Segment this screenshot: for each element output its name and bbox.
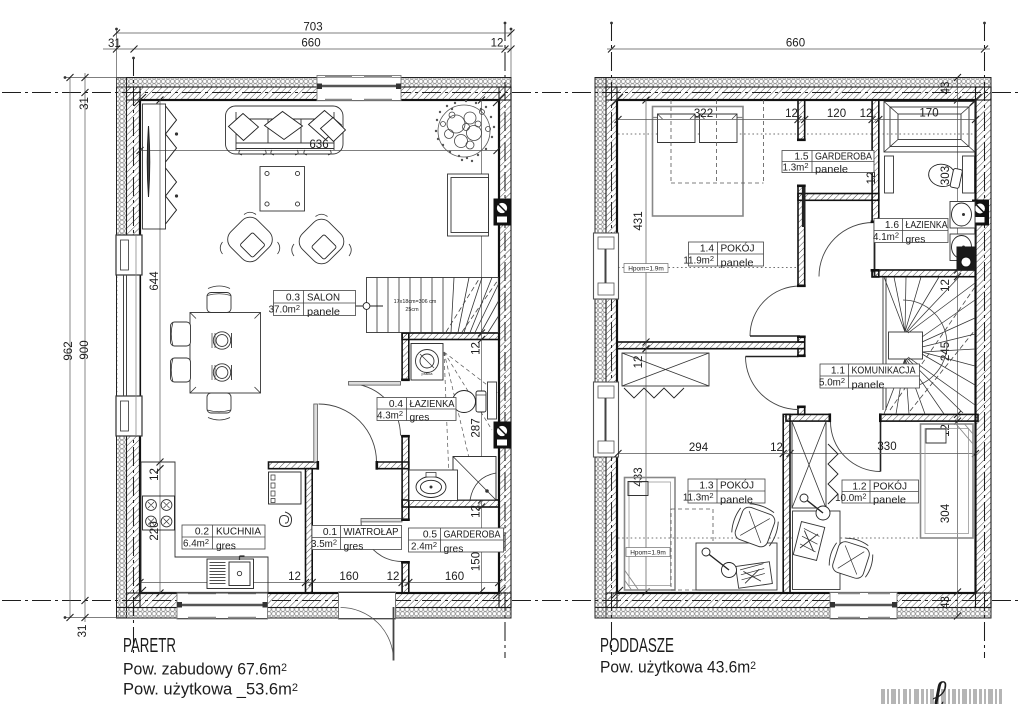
- svg-text:gres: gres: [216, 541, 236, 552]
- svg-text:KUCHNIA: KUCHNIA: [216, 527, 261, 538]
- svg-text:12: 12: [770, 442, 783, 454]
- svg-text:gres: gres: [444, 544, 464, 555]
- svg-text:POKÓJ: POKÓJ: [873, 479, 907, 492]
- svg-text:11.9m2: 11.9m2: [683, 254, 714, 267]
- svg-text:POKÓJ: POKÓJ: [721, 242, 755, 255]
- svg-text:25cm: 25cm: [405, 307, 419, 313]
- svg-text:43: 43: [940, 596, 952, 609]
- svg-text:287: 287: [471, 418, 483, 437]
- svg-text:330: 330: [877, 441, 896, 453]
- svg-text:WIATROŁAP: WIATROŁAP: [344, 527, 399, 538]
- svg-text:panele: panele: [873, 495, 906, 506]
- svg-text:31: 31: [77, 625, 89, 638]
- svg-text:Hpom=1.9m: Hpom=1.9m: [630, 550, 666, 557]
- svg-text:962: 962: [63, 341, 75, 360]
- svg-text:panele: panele: [815, 165, 848, 176]
- svg-text:294: 294: [689, 442, 709, 454]
- svg-text:10.0m2: 10.0m2: [835, 492, 866, 505]
- svg-text:0.5: 0.5: [423, 530, 437, 541]
- svg-text:12: 12: [288, 571, 301, 583]
- svg-text:12: 12: [860, 108, 873, 120]
- svg-text:120: 120: [827, 108, 846, 120]
- svg-text:12: 12: [471, 505, 483, 518]
- svg-text:12: 12: [785, 108, 798, 120]
- svg-text:1.3: 1.3: [699, 481, 713, 492]
- svg-text:31: 31: [108, 38, 121, 50]
- svg-text:11.3m2: 11.3m2: [683, 491, 714, 504]
- svg-text:ℓ: ℓ: [932, 674, 947, 704]
- svg-text:17x18cm=306 cm: 17x18cm=306 cm: [394, 299, 437, 305]
- svg-text:PARETR: PARETR: [123, 635, 176, 657]
- svg-text:304: 304: [940, 503, 952, 523]
- svg-text:1.6: 1.6: [885, 220, 899, 231]
- svg-text:1.4: 1.4: [700, 244, 714, 255]
- svg-text:PODDASZE: PODDASZE: [600, 635, 674, 657]
- svg-text:660: 660: [301, 38, 320, 50]
- svg-text:panele: panele: [720, 495, 753, 506]
- svg-text:12: 12: [387, 571, 400, 583]
- svg-text:GARDEROBA: GARDEROBA: [444, 530, 501, 541]
- svg-text:12: 12: [471, 342, 483, 355]
- svg-text:37.0m2: 37.0m2: [269, 303, 300, 316]
- svg-text:1.1: 1.1: [831, 366, 845, 377]
- svg-text:panele: panele: [721, 258, 754, 269]
- svg-text:Pow. zabudowy 67.6m2: Pow. zabudowy 67.6m2: [123, 661, 287, 679]
- svg-text:12: 12: [866, 172, 878, 185]
- svg-text:660: 660: [786, 38, 805, 50]
- svg-text:gres: gres: [344, 542, 364, 553]
- svg-text:POKÓJ: POKÓJ: [720, 479, 754, 492]
- svg-text:0.3: 0.3: [286, 293, 300, 304]
- svg-text:SALON: SALON: [307, 293, 340, 304]
- svg-text:Hpom=1.9m: Hpom=1.9m: [628, 266, 664, 273]
- svg-text:160: 160: [339, 571, 358, 583]
- svg-text:panele: panele: [307, 307, 340, 318]
- svg-text:43: 43: [940, 82, 952, 95]
- svg-text:150: 150: [471, 552, 483, 571]
- svg-text:160: 160: [445, 571, 464, 583]
- svg-text:644: 644: [149, 271, 161, 291]
- svg-text:KOMUNIKACJA: KOMUNIKACJA: [852, 366, 916, 377]
- svg-text:220: 220: [149, 521, 161, 540]
- svg-text:12: 12: [940, 279, 952, 292]
- svg-text:Pow. użytkowa _53.6m2: Pow. użytkowa _53.6m2: [123, 681, 298, 699]
- svg-text:0.1: 0.1: [323, 527, 337, 538]
- svg-text:636: 636: [309, 139, 328, 151]
- svg-text:900: 900: [79, 340, 91, 359]
- svg-text:0.2: 0.2: [195, 527, 209, 538]
- svg-text:12: 12: [149, 468, 161, 481]
- svg-text:170: 170: [919, 108, 938, 120]
- svg-text:GARDEROBA: GARDEROBA: [815, 152, 872, 163]
- svg-text:12: 12: [491, 38, 504, 50]
- svg-text:gres: gres: [906, 235, 926, 246]
- svg-text:ŁAZIENKA: ŁAZIENKA: [410, 399, 455, 410]
- svg-text:panele: panele: [852, 380, 885, 391]
- svg-text:431: 431: [633, 211, 645, 230]
- svg-text:gres: gres: [410, 413, 430, 424]
- svg-text:31: 31: [79, 97, 91, 110]
- svg-text:703: 703: [303, 22, 322, 34]
- svg-text:ŁAZIENKA: ŁAZIENKA: [906, 220, 948, 231]
- svg-text:Pow. użytkowa 43.6m2: Pow. użytkowa 43.6m2: [600, 659, 756, 677]
- svg-text:303: 303: [940, 166, 952, 185]
- svg-text:322: 322: [694, 108, 713, 120]
- svg-text:pralka: pralka: [422, 371, 434, 376]
